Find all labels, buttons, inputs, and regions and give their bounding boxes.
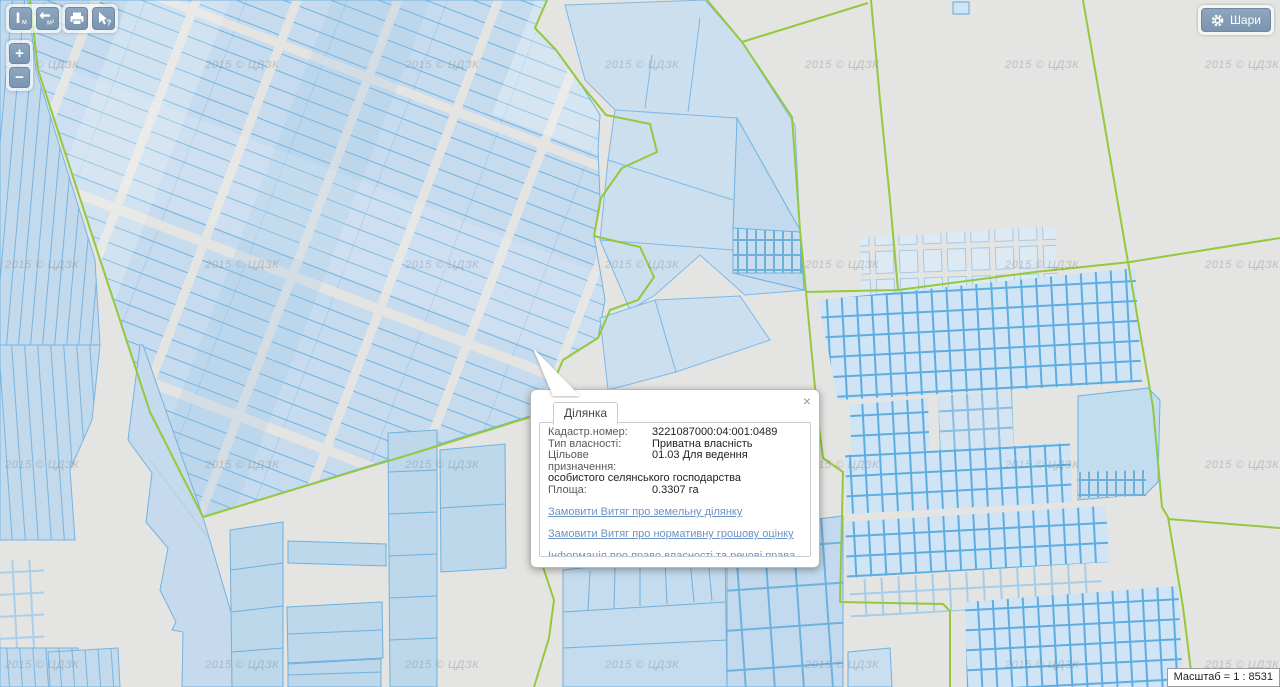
svg-text:2015 © ЦДЗК: 2015 © ЦДЗК [604,259,679,271]
svg-text:м: м [22,19,27,26]
identify-cursor-icon: ? [95,11,112,27]
order-monetary-valuation-link[interactable]: Замовити Витяг про нормативну грошову оц… [548,528,802,540]
svg-text:2015 © ЦДЗК: 2015 © ЦДЗК [404,459,479,471]
svg-text:2015 © ЦДЗК: 2015 © ЦДЗК [404,659,479,671]
svg-text:2015 © ЦДЗК: 2015 © ЦДЗК [4,259,79,271]
parcel-info-popup: Ділянка × Кадастр.номер:3221087000:04:00… [530,389,820,568]
svg-text:2015 © ЦДЗК: 2015 © ЦДЗК [204,259,279,271]
svg-text:2015 © ЦДЗК: 2015 © ЦДЗК [204,59,279,71]
svg-text:2015 © ЦДЗК: 2015 © ЦДЗК [1004,259,1079,271]
svg-text:2015 © ЦДЗК: 2015 © ЦДЗК [1004,659,1079,671]
measure-length-button[interactable]: м [9,7,32,30]
svg-text:2015 © ЦДЗК: 2015 © ЦДЗК [404,59,479,71]
layers-control: Шари [1198,5,1274,35]
svg-text:2015 © ЦДЗК: 2015 © ЦДЗК [1004,459,1079,471]
svg-text:2015 © ЦДЗК: 2015 © ЦДЗК [804,59,879,71]
svg-text:?: ? [107,18,112,27]
svg-text:2015 © ЦДЗК: 2015 © ЦДЗК [804,659,879,671]
zoom-control: + − [6,40,33,91]
layers-button-label: Шари [1230,13,1261,27]
zoom-out-button[interactable]: − [9,67,30,88]
parcel-info-content: Кадастр.номер:3221087000:04:001:0489 Тип… [539,422,811,557]
scale-indicator: Масштаб = 1 : 8531 [1167,668,1280,687]
gear-icon [1211,14,1224,27]
order-extract-parcel-link[interactable]: Замовити Витяг про земельну ділянку [548,506,802,518]
measure-area-button[interactable]: м² [36,7,59,30]
svg-text:2015 © ЦДЗК: 2015 © ЦДЗК [804,259,879,271]
svg-text:2015 © ЦДЗК: 2015 © ЦДЗК [604,659,679,671]
svg-text:2015 © ЦДЗК: 2015 © ЦДЗК [4,659,79,671]
tab-parcel[interactable]: Ділянка [553,402,618,425]
field-designated-purpose: Цільове призначення:01.03 Для ведення ос… [548,450,802,485]
svg-text:2015 © ЦДЗК: 2015 © ЦДЗК [1204,459,1279,471]
print-button[interactable] [65,7,88,30]
svg-text:м²: м² [47,20,55,27]
svg-text:2015 © ЦДЗК: 2015 © ЦДЗК [1004,59,1079,71]
measure-toolbar: м м² [6,4,62,33]
svg-text:2015 © ЦДЗК: 2015 © ЦДЗК [4,459,79,471]
svg-text:2015 © ЦДЗК: 2015 © ЦДЗК [204,659,279,671]
zoom-in-button[interactable]: + [9,43,30,64]
svg-text:2015 © ЦДЗК: 2015 © ЦДЗК [1204,59,1279,71]
field-area: Площа:0.3307 га [548,485,802,497]
svg-text:2015 © ЦДЗК: 2015 © ЦДЗК [204,459,279,471]
close-icon[interactable]: × [803,393,811,409]
svg-text:2015 © ЦДЗК: 2015 © ЦДЗК [1204,259,1279,271]
measure-area-icon: м² [38,10,57,27]
ownership-rights-info-link[interactable]: Інформація про право власності та речові… [548,550,802,557]
svg-text:2015 © ЦДЗК: 2015 © ЦДЗК [604,59,679,71]
measure-length-icon: м [12,10,29,27]
map-canvas[interactable]: 2015 © ЦДЗК2015 © ЦДЗК2015 © ЦДЗК2015 © … [0,0,1280,687]
svg-text:2015 © ЦДЗК: 2015 © ЦДЗК [404,259,479,271]
print-icon [69,11,85,26]
tools-toolbar: ? [62,4,118,33]
identify-button[interactable]: ? [92,7,115,30]
layers-button[interactable]: Шари [1201,8,1271,32]
